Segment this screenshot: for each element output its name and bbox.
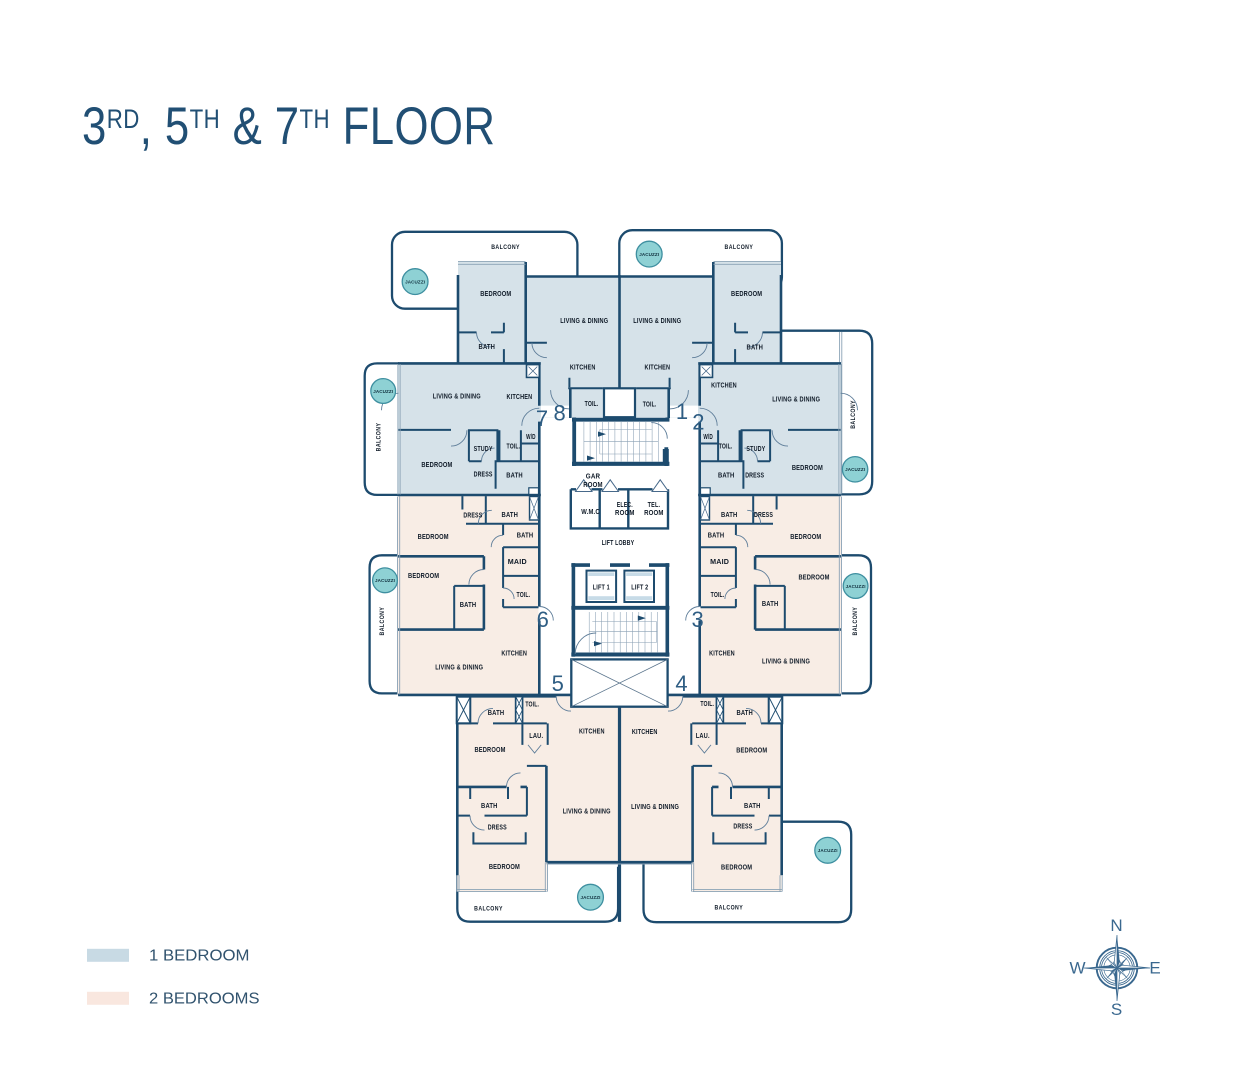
svg-text:BALCONY: BALCONY <box>852 607 859 636</box>
svg-text:2 BEDROOMS: 2 BEDROOMS <box>149 990 260 1007</box>
svg-text:LIVING & DINING: LIVING & DINING <box>633 316 681 325</box>
svg-text:BEDROOM: BEDROOM <box>731 289 762 298</box>
svg-text:BATH: BATH <box>481 801 498 810</box>
svg-text:TOIL.: TOIL. <box>507 441 521 450</box>
svg-text:BEDROOM: BEDROOM <box>792 463 823 472</box>
svg-text:KITCHEN: KITCHEN <box>501 648 527 657</box>
svg-text:TOIL.: TOIL. <box>517 590 531 599</box>
svg-text:LIVING & DINING: LIVING & DINING <box>762 656 810 665</box>
svg-text:TOIL.: TOIL. <box>525 699 539 708</box>
svg-text:BALCONY: BALCONY <box>379 607 386 636</box>
svg-text:JACUZZI: JACUZZI <box>818 848 838 853</box>
svg-text:LIVING & DINING: LIVING & DINING <box>631 802 679 811</box>
svg-text:BATH: BATH <box>718 470 735 479</box>
svg-text:TOIL.: TOIL. <box>711 590 725 599</box>
svg-text:ROOM: ROOM <box>615 510 635 517</box>
svg-text:BATH: BATH <box>460 600 477 609</box>
svg-text:BEDROOM: BEDROOM <box>418 532 449 541</box>
svg-text:BALCONY: BALCONY <box>725 244 754 251</box>
svg-text:BEDROOM: BEDROOM <box>408 571 439 580</box>
svg-text:DRESS: DRESS <box>488 823 507 832</box>
svg-text:W/D: W/D <box>526 432 536 441</box>
svg-text:6: 6 <box>537 607 549 632</box>
svg-text:8: 8 <box>553 401 565 426</box>
svg-text:BEDROOM: BEDROOM <box>489 862 520 871</box>
svg-text:5: 5 <box>552 671 564 696</box>
svg-text:TOIL.: TOIL. <box>585 399 599 408</box>
svg-text:JACUZZI: JACUZZI <box>846 584 866 589</box>
svg-text:LAU.: LAU. <box>696 731 710 740</box>
svg-text:MAID: MAID <box>710 557 729 566</box>
svg-text:BATH: BATH <box>479 342 496 351</box>
svg-text:W.M.C: W.M.C <box>581 509 600 516</box>
svg-text:DRESS: DRESS <box>745 470 764 479</box>
svg-text:MAID: MAID <box>508 557 527 566</box>
svg-text:TOIL.: TOIL. <box>700 699 714 708</box>
svg-text:KITCHEN: KITCHEN <box>644 363 670 372</box>
svg-text:BATH: BATH <box>502 510 519 519</box>
svg-text:KITCHEN: KITCHEN <box>507 392 533 401</box>
svg-text:N: N <box>1110 916 1122 935</box>
svg-text:JACUZZI: JACUZZI <box>375 578 395 583</box>
svg-text:TOIL.: TOIL. <box>643 399 657 408</box>
svg-text:BALCONY: BALCONY <box>850 400 857 429</box>
svg-text:7: 7 <box>536 406 548 431</box>
svg-text:JACUZZI: JACUZZI <box>581 895 601 900</box>
svg-text:KITCHEN: KITCHEN <box>709 648 735 657</box>
svg-text:BATH: BATH <box>506 470 523 479</box>
svg-text:BATH: BATH <box>488 708 505 717</box>
svg-text:BEDROOM: BEDROOM <box>790 532 821 541</box>
svg-text:BATH: BATH <box>736 708 753 717</box>
svg-text:GAR: GAR <box>586 474 601 481</box>
svg-text:KITCHEN: KITCHEN <box>570 363 596 372</box>
svg-text:DRESS: DRESS <box>733 822 752 831</box>
svg-text:KITCHEN: KITCHEN <box>632 727 658 736</box>
svg-text:W: W <box>1069 959 1085 978</box>
svg-text:4: 4 <box>675 671 687 696</box>
svg-text:BEDROOM: BEDROOM <box>736 745 767 754</box>
svg-text:KITCHEN: KITCHEN <box>711 381 737 390</box>
svg-text:LAU.: LAU. <box>529 731 543 740</box>
svg-text:BALCONY: BALCONY <box>474 905 503 912</box>
svg-text:BALCONY: BALCONY <box>491 244 520 251</box>
svg-text:BATH: BATH <box>744 801 761 810</box>
svg-text:DRESS: DRESS <box>463 510 482 519</box>
svg-text:LIFT LOBBY: LIFT LOBBY <box>602 540 635 547</box>
svg-text:KITCHEN: KITCHEN <box>579 726 605 735</box>
svg-text:LIVING & DINING: LIVING & DINING <box>435 662 483 671</box>
svg-text:S: S <box>1111 1000 1122 1019</box>
svg-text:TEL.: TEL. <box>648 502 661 509</box>
svg-text:BATH: BATH <box>517 530 534 539</box>
svg-text:STUDY: STUDY <box>746 444 765 453</box>
svg-text:STUDY: STUDY <box>474 444 493 453</box>
svg-text:3: 3 <box>691 607 703 632</box>
svg-text:BATH: BATH <box>747 343 764 352</box>
svg-text:LIFT 2: LIFT 2 <box>631 584 648 591</box>
svg-text:BATH: BATH <box>762 599 779 608</box>
svg-text:JACUZZI: JACUZZI <box>845 467 865 472</box>
svg-text:LIVING & DINING: LIVING & DINING <box>433 391 481 400</box>
svg-text:BALCONY: BALCONY <box>376 422 383 451</box>
svg-text:DRESS: DRESS <box>754 510 773 519</box>
svg-text:LIVING & DINING: LIVING & DINING <box>560 316 608 325</box>
svg-text:ROOM: ROOM <box>583 482 603 489</box>
svg-text:JACUZZI: JACUZZI <box>373 389 393 394</box>
svg-text:BEDROOM: BEDROOM <box>798 573 829 582</box>
svg-text:BEDROOM: BEDROOM <box>480 289 511 298</box>
svg-text:ELEC.: ELEC. <box>617 502 633 509</box>
svg-text:W/D: W/D <box>703 432 713 441</box>
svg-text:BEDROOM: BEDROOM <box>474 745 505 754</box>
svg-text:2: 2 <box>692 409 704 434</box>
svg-text:LIFT 1: LIFT 1 <box>593 584 610 591</box>
svg-text:BEDROOM: BEDROOM <box>421 460 452 469</box>
svg-text:JACUZZI: JACUZZI <box>639 252 659 257</box>
svg-text:1 BEDROOM: 1 BEDROOM <box>149 947 250 964</box>
svg-text:E: E <box>1149 959 1160 978</box>
svg-text:DRESS: DRESS <box>474 470 493 479</box>
svg-text:1: 1 <box>676 399 688 424</box>
svg-text:ROOM: ROOM <box>644 510 664 517</box>
svg-text:3RD, 5TH & 7TH FLOOR: 3RD, 5TH & 7TH FLOOR <box>82 97 495 156</box>
svg-text:BALCONY: BALCONY <box>714 905 743 912</box>
svg-text:LIVING & DINING: LIVING & DINING <box>772 394 820 403</box>
svg-text:BEDROOM: BEDROOM <box>721 862 752 871</box>
svg-text:TOIL.: TOIL. <box>719 441 733 450</box>
svg-text:BATH: BATH <box>721 510 738 519</box>
svg-text:JACUZZI: JACUZZI <box>405 279 425 284</box>
svg-text:BATH: BATH <box>708 530 725 539</box>
svg-text:LIVING & DINING: LIVING & DINING <box>563 807 611 816</box>
